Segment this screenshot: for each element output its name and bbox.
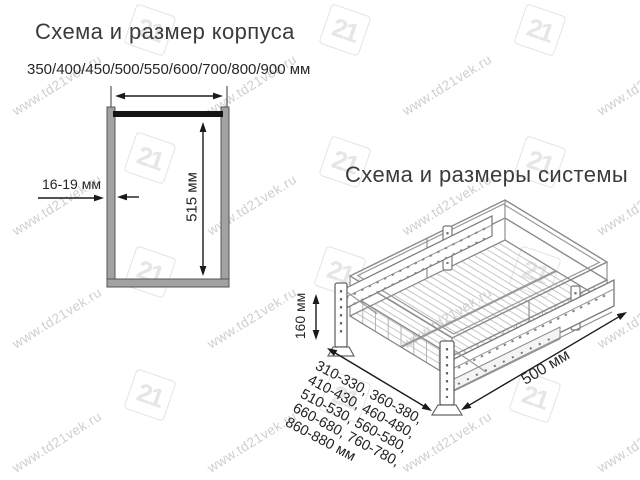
watermark-logo-21-icon: 21: [513, 3, 566, 56]
watermark-text: www.td21vek.ru: [10, 409, 105, 476]
watermark-text: www.td21vek.ru: [595, 409, 640, 476]
watermark-logo-21-icon: 21: [508, 245, 561, 298]
watermark-text: www.td21vek.ru: [205, 409, 300, 476]
cabinet-height-label: 515 мм: [184, 172, 201, 222]
watermark-text: www.td21vek.ru: [595, 285, 640, 352]
system-diagram-title: Схема и размеры системы: [345, 162, 628, 188]
watermark-text: www.td21vek.ru: [595, 52, 640, 119]
watermark-logo-21-icon: 21: [318, 3, 371, 56]
body-diagram-title: Схема и размер корпуса: [35, 19, 295, 45]
watermark-text: www.td21vek.ru: [205, 285, 300, 352]
system-height-label: 160 мм: [292, 293, 308, 340]
watermark-text: www.td21vek.ru: [205, 172, 300, 239]
watermark-logo-21-icon: 21: [123, 131, 176, 184]
watermark-logo-21-icon: 21: [123, 245, 176, 298]
cabinet-width-options-label: 350/400/450/500/550/600/700/800/900 мм: [27, 61, 310, 78]
watermark-logo-21-icon: 21: [313, 245, 366, 298]
watermark-text: www.td21vek.ru: [400, 285, 495, 352]
watermark-text: www.td21vek.ru: [400, 52, 495, 119]
panel-thickness-label: 16-19 мм: [42, 176, 101, 192]
watermark-logo-21-icon: 21: [123, 368, 176, 421]
page: www.td21vek.ruwww.td21vek.ruwww.td21vek.…: [0, 0, 640, 480]
watermark-text: www.td21vek.ru: [10, 285, 105, 352]
